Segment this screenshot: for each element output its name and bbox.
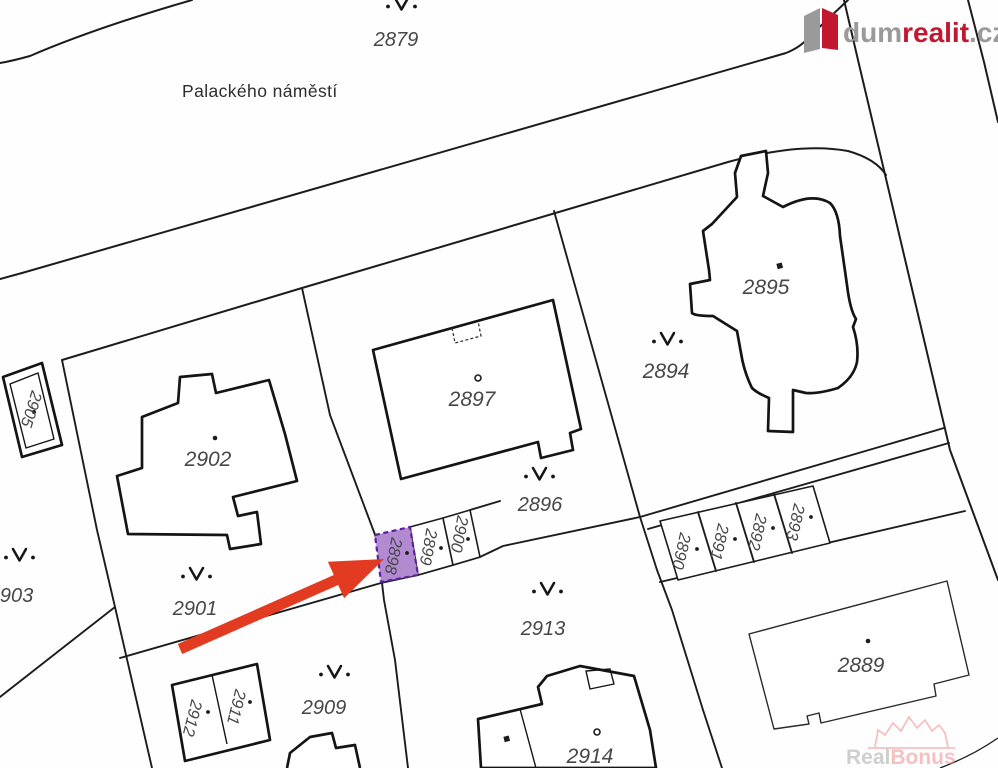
watermark: RealBonus: [846, 717, 956, 768]
parcel-label-2897: 2897: [448, 388, 497, 411]
dot-2912: [206, 710, 210, 714]
watermark-real: Real: [846, 746, 890, 768]
landuse-symbol-2903: [4, 549, 35, 561]
logo-text-cz: .cz: [969, 17, 998, 48]
parcel-label-2902: 2902: [184, 448, 232, 471]
dot-2893: [809, 515, 813, 519]
street-name-label: Palackého náměstí: [182, 81, 338, 101]
dot-2898: [405, 551, 409, 555]
logo-text-realit: realit: [902, 17, 969, 48]
parcel-label-2909: 2909: [301, 697, 347, 719]
parcel-label-2913: 2913: [520, 618, 566, 640]
buildings: [3, 151, 969, 768]
parcel-label-2879: 2879: [373, 29, 419, 51]
logo-house-icon-right: [822, 8, 838, 50]
parcel-label-2914: 2914: [566, 745, 614, 768]
brand-logo[interactable]: dumrealit.cz: [804, 8, 998, 53]
boundary-west: [62, 360, 152, 768]
parcel-label-2903: 2903: [0, 585, 33, 607]
parcel-label-2889: 2889: [837, 654, 885, 677]
dot-2892: [771, 526, 775, 530]
building-bottom-partial: [287, 733, 360, 768]
parcel-label-2896: 2896: [517, 494, 563, 516]
road-top-left-curve: [0, 0, 192, 63]
parcel-label-2894: 2894: [642, 360, 690, 383]
landuse-symbol-2879: [386, 0, 417, 10]
landuse-symbol-2901: [181, 568, 212, 580]
boundary-row-top-extension: [470, 501, 500, 510]
map-canvas: Palackého náměstí 2879 2902 2897 2896 28…: [0, 0, 998, 768]
logo-text[interactable]: dumrealit.cz: [843, 17, 998, 48]
logo-text-dum: dum: [843, 17, 902, 48]
parcel-label-2895: 2895: [742, 276, 790, 299]
dot-2911: [248, 700, 252, 704]
dot-2890: [695, 547, 699, 551]
watermark-bonus: Bonus: [890, 746, 955, 768]
landuse-symbol-2896: [524, 468, 555, 480]
landuse-symbol-2894: [652, 333, 683, 345]
cadastral-map: Palackého náměstí 2879 2902 2897 2896 28…: [0, 0, 998, 768]
logo-house-icon-left: [804, 8, 820, 53]
boundary-west-spur: [0, 607, 115, 697]
dot-2902: [213, 436, 218, 441]
dot-2889: [866, 639, 871, 644]
dot-2899: [439, 546, 443, 550]
landuse-symbol-2913: [532, 583, 563, 595]
watermark-text: RealBonus: [846, 746, 956, 768]
road-right-inner-line: [844, 0, 998, 580]
watermark-castle-icon: [868, 717, 955, 748]
parcel-label-2901: 2901: [172, 598, 218, 620]
landuse-symbol-2909: [319, 666, 350, 678]
dot-2891: [733, 537, 737, 541]
